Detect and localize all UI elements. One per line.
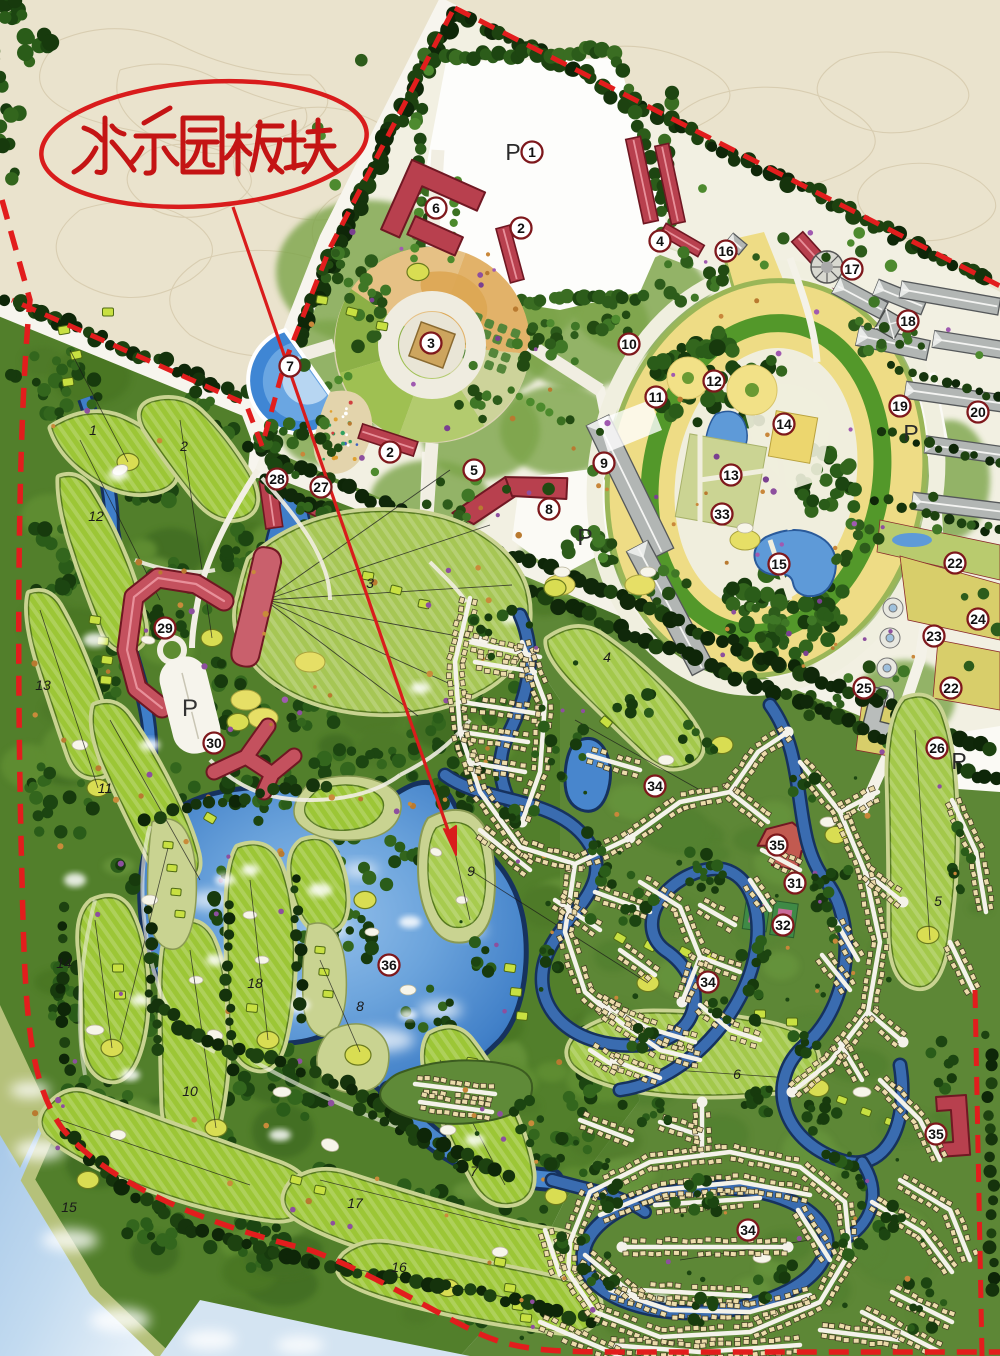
svg-text:10: 10	[621, 336, 637, 352]
svg-text:16: 16	[718, 243, 734, 259]
svg-text:14: 14	[56, 955, 72, 971]
svg-text:35: 35	[928, 1126, 944, 1142]
svg-text:15: 15	[61, 1199, 77, 1215]
svg-text:8: 8	[545, 501, 553, 517]
svg-text:18: 18	[247, 975, 263, 991]
svg-text:18: 18	[900, 313, 916, 329]
svg-text:4: 4	[603, 649, 611, 665]
svg-text:33: 33	[714, 506, 730, 522]
svg-text:2: 2	[386, 444, 394, 460]
svg-text:4: 4	[656, 233, 664, 249]
svg-text:27: 27	[313, 479, 329, 495]
svg-text:3: 3	[427, 335, 435, 351]
svg-text:20: 20	[970, 404, 986, 420]
svg-text:16: 16	[391, 1259, 407, 1275]
svg-text:17: 17	[347, 1195, 364, 1211]
svg-text:28: 28	[269, 471, 285, 487]
svg-text:P: P	[951, 748, 966, 774]
svg-text:24: 24	[970, 611, 986, 627]
svg-text:30: 30	[206, 735, 222, 751]
svg-text:17: 17	[844, 261, 860, 277]
svg-text:9: 9	[600, 455, 608, 471]
svg-text:P: P	[903, 420, 918, 446]
svg-text:13: 13	[35, 677, 51, 693]
svg-text:1: 1	[89, 422, 97, 438]
svg-text:36: 36	[381, 957, 397, 973]
svg-text:5: 5	[934, 893, 942, 909]
svg-text:12: 12	[706, 373, 722, 389]
svg-text:8: 8	[356, 998, 364, 1014]
svg-text:P: P	[182, 695, 198, 722]
svg-text:31: 31	[787, 875, 803, 891]
svg-text:5: 5	[470, 462, 478, 478]
svg-text:12: 12	[88, 508, 104, 524]
svg-text:9: 9	[467, 863, 475, 879]
svg-text:25: 25	[856, 680, 872, 696]
svg-text:11: 11	[649, 389, 664, 405]
svg-text:6: 6	[733, 1066, 741, 1082]
svg-text:3: 3	[366, 575, 374, 591]
svg-text:35: 35	[769, 837, 785, 853]
svg-text:P: P	[577, 524, 592, 550]
svg-text:2: 2	[517, 220, 525, 236]
svg-text:34: 34	[647, 778, 663, 794]
svg-text:32: 32	[775, 917, 791, 933]
svg-text:6: 6	[432, 200, 440, 216]
svg-text:13: 13	[723, 467, 739, 483]
svg-text:19: 19	[892, 398, 908, 414]
svg-text:22: 22	[947, 555, 963, 571]
svg-text:7: 7	[286, 358, 294, 374]
svg-text:2: 2	[179, 438, 188, 454]
svg-text:29: 29	[157, 620, 173, 636]
svg-text:10: 10	[182, 1083, 198, 1099]
svg-text:15: 15	[771, 556, 787, 572]
svg-text:11: 11	[98, 780, 113, 796]
svg-text:34: 34	[740, 1222, 756, 1238]
svg-text:22: 22	[943, 680, 959, 696]
svg-text:23: 23	[926, 628, 942, 644]
svg-text:14: 14	[776, 416, 792, 432]
svg-text:1: 1	[528, 144, 536, 160]
svg-text:P: P	[505, 139, 520, 165]
svg-text:26: 26	[929, 740, 945, 756]
svg-text:7: 7	[470, 1163, 479, 1179]
svg-text:34: 34	[700, 974, 716, 990]
